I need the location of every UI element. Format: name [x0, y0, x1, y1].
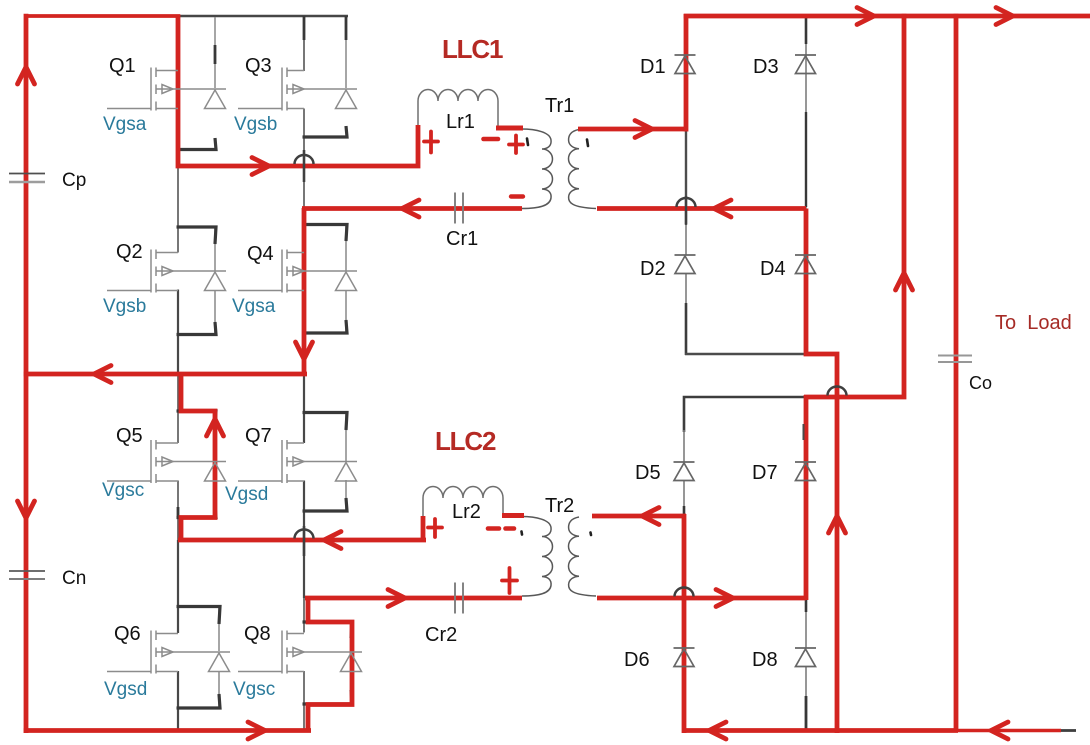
svg-text:Vgsa: Vgsa	[232, 296, 276, 317]
svg-text:LLC1: LLC1	[442, 34, 503, 64]
svg-text:Co: Co	[969, 373, 992, 393]
svg-text:Vgsb: Vgsb	[234, 114, 277, 135]
svg-text:Q6: Q6	[114, 623, 141, 645]
svg-text:To Load: To Load	[995, 312, 1072, 334]
svg-text:Tr2: Tr2	[545, 495, 574, 517]
svg-text:Q5: Q5	[116, 425, 143, 447]
svg-text:Q3: Q3	[245, 55, 272, 77]
svg-text:D4: D4	[760, 258, 786, 280]
svg-text:Lr1: Lr1	[446, 111, 475, 133]
svg-text:Vgsd: Vgsd	[104, 679, 147, 700]
svg-text:Vgsa: Vgsa	[103, 114, 147, 135]
svg-text:Q7: Q7	[245, 425, 272, 447]
svg-text:Cr1: Cr1	[446, 228, 478, 250]
svg-text:Q2: Q2	[116, 241, 143, 263]
svg-text:D2: D2	[640, 258, 666, 280]
svg-text:Q4: Q4	[247, 243, 274, 265]
svg-text:LLC2: LLC2	[435, 426, 496, 456]
svg-text:Vgsb: Vgsb	[103, 296, 146, 317]
svg-text:Cr2: Cr2	[425, 624, 457, 646]
svg-text:D7: D7	[752, 462, 778, 484]
svg-text:D1: D1	[640, 56, 666, 78]
svg-text:D3: D3	[753, 56, 779, 78]
svg-text:Q1: Q1	[109, 55, 136, 77]
svg-text:Vgsd: Vgsd	[225, 484, 268, 505]
svg-text:D8: D8	[752, 649, 778, 671]
svg-text:Vgsc: Vgsc	[102, 480, 144, 501]
svg-text:Cp: Cp	[62, 170, 86, 191]
svg-text:D6: D6	[624, 649, 650, 671]
svg-text:Q8: Q8	[244, 623, 271, 645]
svg-text:Tr1: Tr1	[545, 95, 574, 117]
svg-text:Lr2: Lr2	[452, 501, 481, 523]
svg-text:D5: D5	[635, 462, 661, 484]
svg-text:Cn: Cn	[62, 568, 86, 589]
svg-text:Vgsc: Vgsc	[233, 679, 275, 700]
